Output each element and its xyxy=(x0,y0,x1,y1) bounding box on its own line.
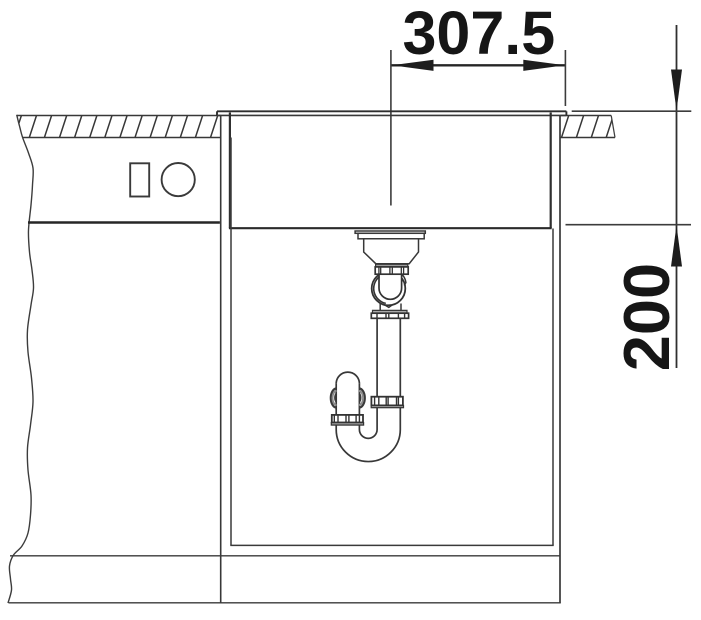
svg-text:200: 200 xyxy=(610,263,683,371)
svg-text:307.5: 307.5 xyxy=(402,0,555,67)
